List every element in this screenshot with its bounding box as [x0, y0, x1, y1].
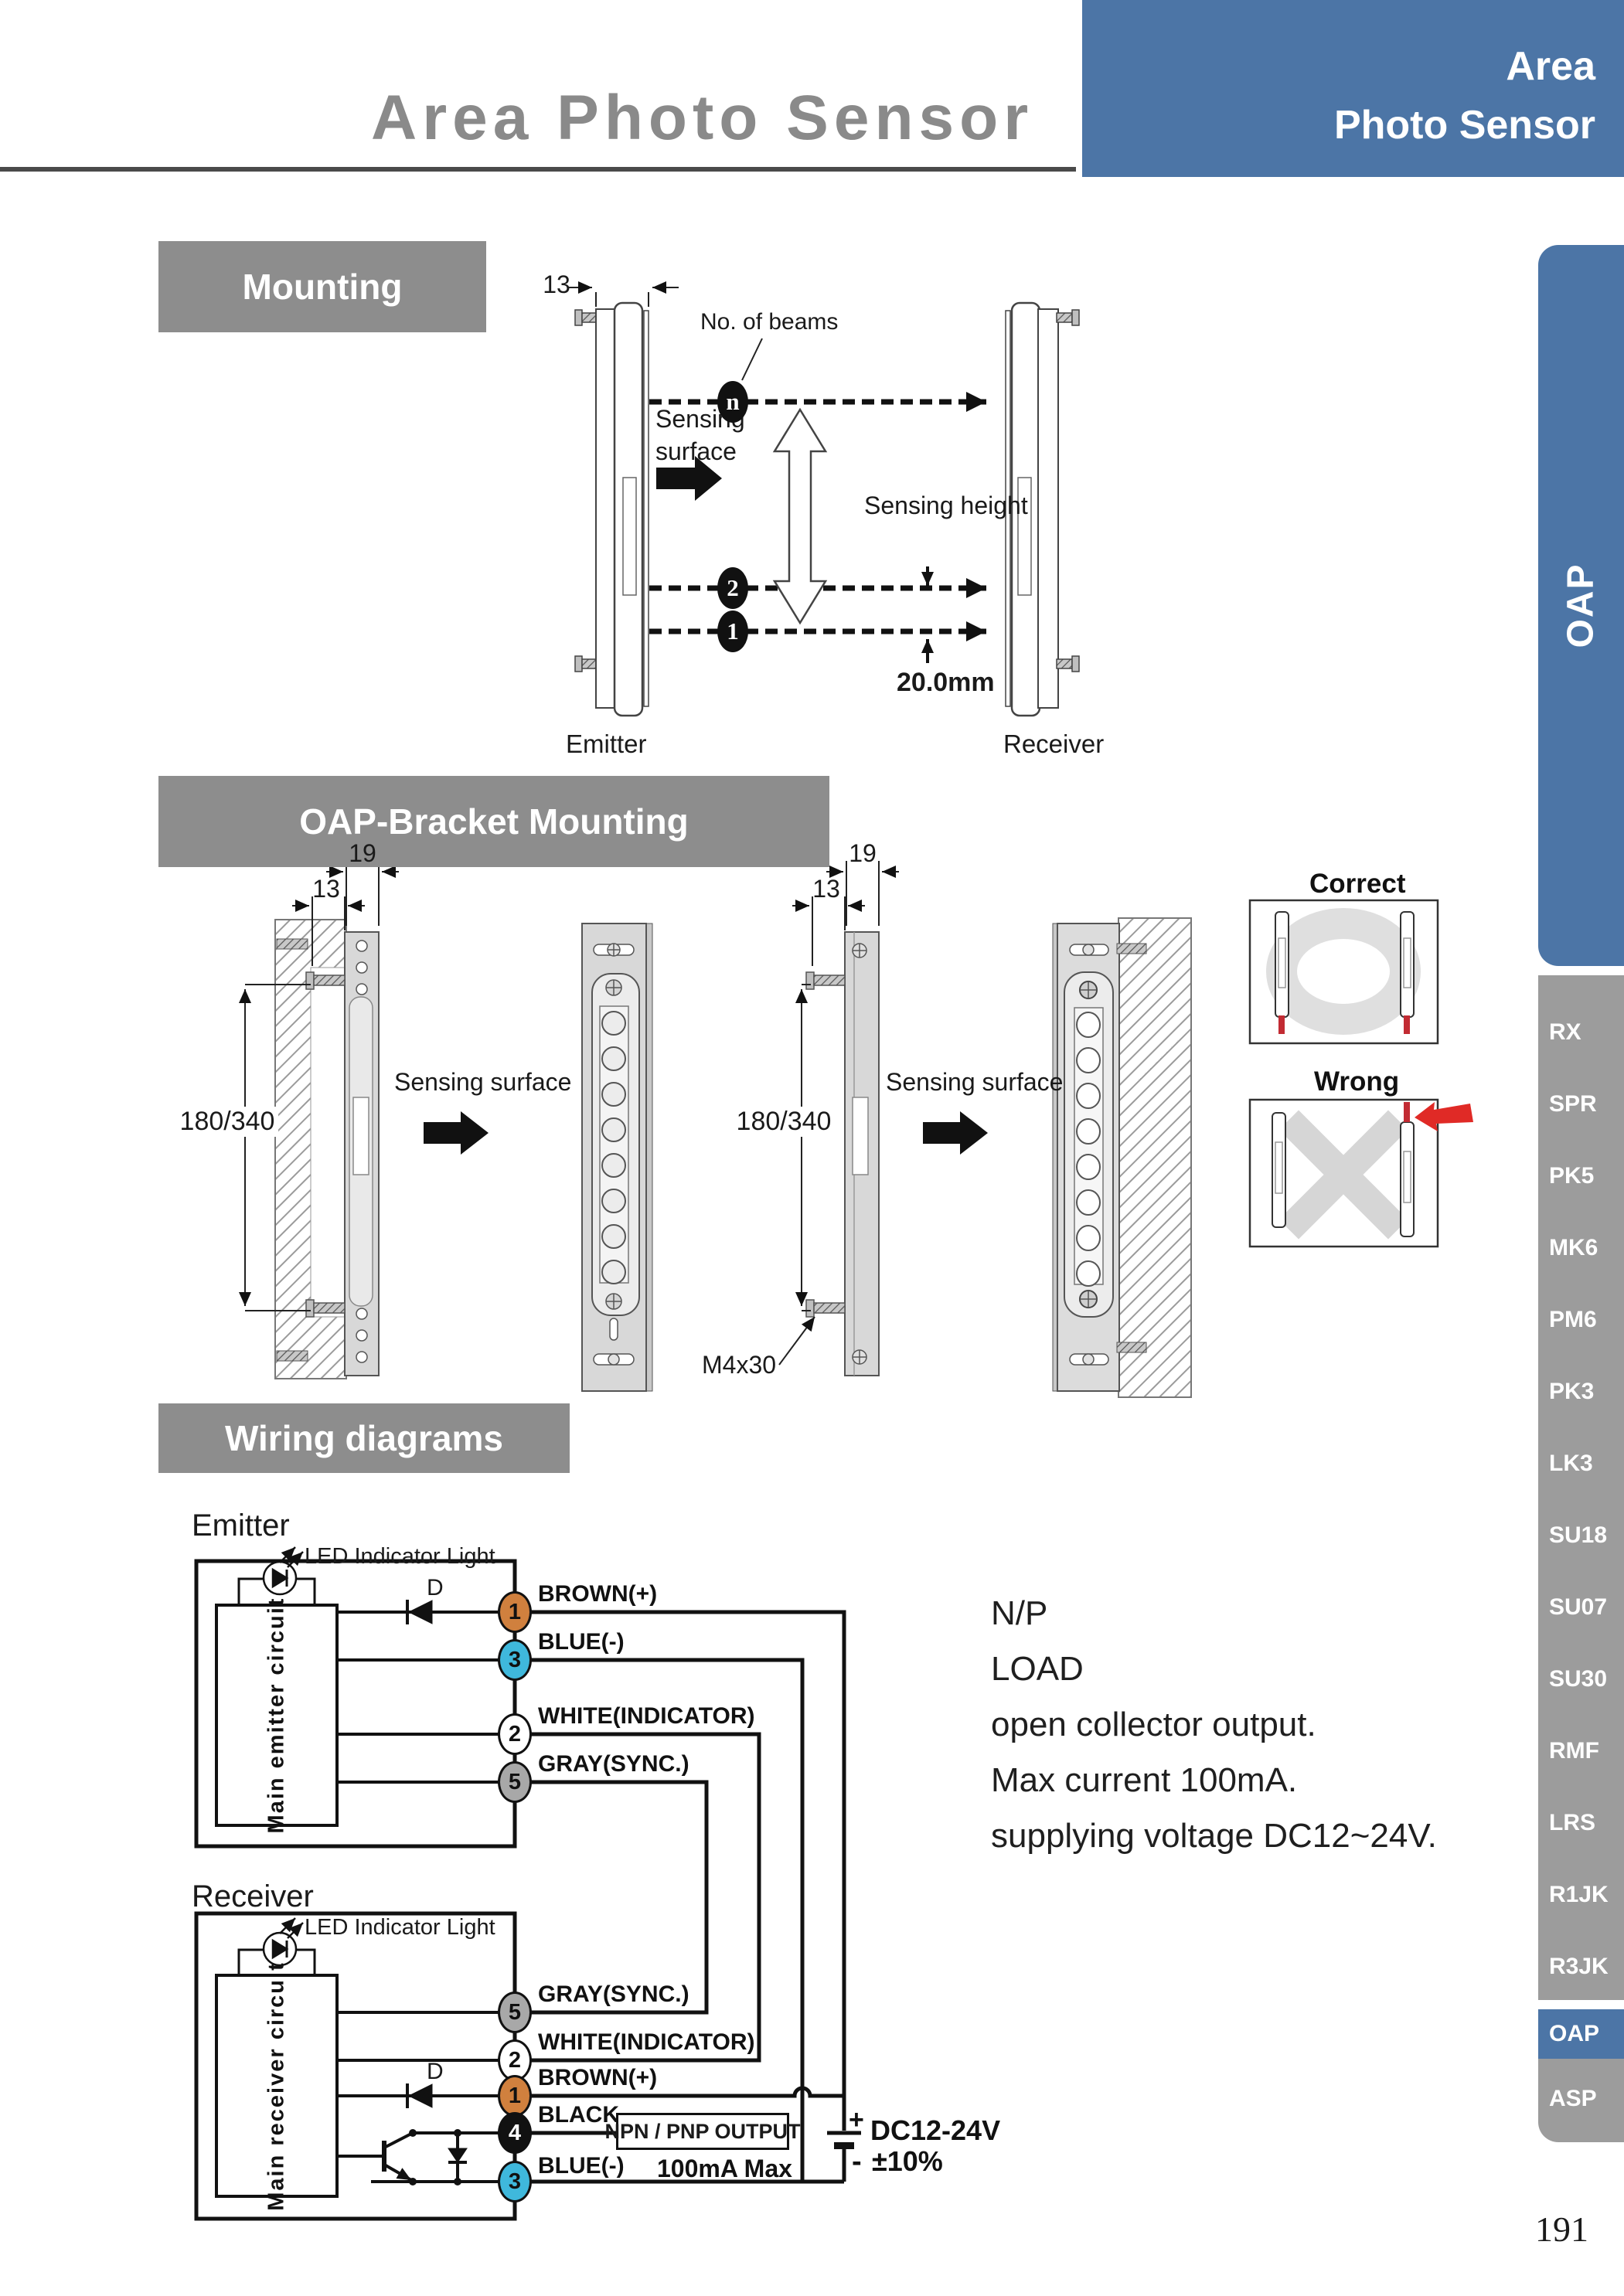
- receiver-terminal-gray: 5: [498, 1992, 532, 2033]
- sidebar-item-pk3[interactable]: PK3: [1538, 1375, 1624, 1409]
- bracket-dim-height-b: 180/340: [733, 1107, 835, 1137]
- sidebar-item-su30[interactable]: SU30: [1538, 1662, 1624, 1696]
- badge-line2: Photo Sensor: [1082, 102, 1595, 148]
- bracket-sensing-surface-a: Sensing surface: [394, 1068, 571, 1097]
- page-number: 191: [1535, 2209, 1588, 2250]
- section-header-mounting: Mounting: [158, 241, 486, 332]
- sidebar-item-pm6[interactable]: PM6: [1538, 1303, 1624, 1337]
- receiver-led-label: LED Indicator Light: [305, 1915, 495, 1941]
- page-title: Area Photo Sensor: [371, 82, 1033, 155]
- sensing-surface-label-line2: surface: [655, 437, 737, 466]
- bracket-diagram: [245, 861, 1473, 1397]
- note-line2: LOAD: [991, 1641, 1084, 1697]
- receiver-terminal-brown: 1: [498, 2075, 532, 2117]
- bracket-sensing-surface-b: Sensing surface: [886, 1068, 1063, 1097]
- receiver-wire-brown-label: BROWN(+): [538, 2065, 657, 2091]
- no-of-beams-label: No. of beams: [700, 309, 838, 335]
- emitter-led-label: LED Indicator Light: [305, 1544, 495, 1570]
- sidebar-item-spr[interactable]: SPR: [1538, 1087, 1624, 1121]
- emitter-circuit-block: Main emitter circuit: [216, 1605, 337, 1825]
- supply-tolerance-label: ±10%: [872, 2145, 943, 2178]
- emitter-terminal-gray: 5: [498, 1761, 532, 1803]
- section-header-wiring: Wiring diagrams: [158, 1403, 570, 1473]
- bracket-dim-13-b: 13: [809, 875, 843, 903]
- receiver-circuit-block: Main receiver circuit: [216, 1975, 337, 2196]
- beam-gap-label: 20.0mm: [897, 668, 995, 698]
- max-current-label: 100mA Max: [657, 2155, 792, 2183]
- bracket-dim-19-b: 19: [846, 839, 880, 868]
- battery-minus: -: [852, 2145, 862, 2179]
- sidebar-tab-oap[interactable]: OAP: [1538, 245, 1624, 966]
- wiring-emitter-title: Emitter: [192, 1509, 290, 1543]
- emitter-wire-blue-label: BLUE(-): [538, 1629, 625, 1655]
- output-type-box: NPN / PNP OUTPUT: [616, 2113, 789, 2150]
- sidebar-item-asp[interactable]: ASP: [1538, 2082, 1624, 2116]
- sidebar-item-lk3[interactable]: LK3: [1538, 1447, 1624, 1481]
- note-line4: Max current 100mA.: [991, 1753, 1297, 1808]
- catalog-page: Area Photo Sensor Area Photo Sensor Moun…: [0, 0, 1624, 2296]
- note-line3: open collector output.: [991, 1697, 1316, 1753]
- sidebar-item-su18[interactable]: SU18: [1538, 1519, 1624, 1553]
- sidebar-item-su07[interactable]: SU07: [1538, 1590, 1624, 1624]
- sensing-height-label: Sensing height: [864, 492, 1028, 520]
- sidebar-item-r1jk[interactable]: R1JK: [1538, 1878, 1624, 1912]
- receiver-wire-white-label: WHITE(INDICATOR): [538, 2029, 755, 2056]
- sidebar-strip: [1538, 975, 1624, 2000]
- bracket-screw-spec: M4x30: [702, 1351, 776, 1379]
- wrong-label: Wrong: [1314, 1066, 1399, 1097]
- sidebar-item-mk6[interactable]: MK6: [1538, 1231, 1624, 1265]
- receiver-diode-label: D: [427, 2059, 444, 2085]
- sidebar-item-rx[interactable]: RX: [1538, 1015, 1624, 1049]
- emitter-terminal-white: 2: [498, 1713, 532, 1755]
- receiver-terminal-black: 4: [498, 2112, 532, 2154]
- correct-label: Correct: [1309, 869, 1405, 900]
- emitter-terminal-blue: 3: [498, 1639, 532, 1681]
- badge-line1: Area: [1082, 43, 1595, 90]
- section-header-bracket: OAP-Bracket Mounting: [158, 776, 829, 867]
- beam-n-marker: n: [717, 381, 748, 423]
- wiring-receiver-title: Receiver: [192, 1879, 314, 1914]
- receiver-wire-blue-label: BLUE(-): [538, 2153, 625, 2179]
- emitter-wire-white-label: WHITE(INDICATOR): [538, 1703, 755, 1730]
- bracket-dim-height-a: 180/340: [176, 1107, 278, 1137]
- header-rule: [0, 167, 1076, 172]
- note-line5: supplying voltage DC12~24V.: [991, 1808, 1437, 1864]
- beam-2-marker: 2: [717, 567, 748, 609]
- emitter-terminal-brown: 1: [498, 1591, 532, 1633]
- mounting-emitter-label: Emitter: [566, 730, 647, 759]
- supply-voltage-label: DC12-24V: [870, 2114, 1000, 2147]
- bracket-dim-13-a: 13: [309, 875, 343, 903]
- sidebar-item-r3jk[interactable]: R3JK: [1538, 1950, 1624, 1984]
- sidebar-item-oap-active[interactable]: OAP: [1538, 2009, 1624, 2059]
- battery-plus: +: [849, 2105, 864, 2135]
- sidebar-item-rmf[interactable]: RMF: [1538, 1734, 1624, 1768]
- bracket-dim-19-a: 19: [346, 839, 380, 868]
- note-line1: N/P: [991, 1586, 1047, 1641]
- beam-1-marker: 1: [717, 611, 748, 652]
- receiver-terminal-blue: 3: [498, 2161, 532, 2202]
- emitter-diode-label: D: [427, 1575, 444, 1601]
- sidebar-item-pk5[interactable]: PK5: [1538, 1159, 1624, 1193]
- receiver-wire-gray-label: GRAY(SYNC.): [538, 1981, 689, 2008]
- mounting-receiver-label: Receiver: [1003, 730, 1104, 759]
- sidebar-item-lrs[interactable]: LRS: [1538, 1806, 1624, 1840]
- emitter-wire-brown-label: BROWN(+): [538, 1581, 657, 1607]
- diagram-linework: [0, 0, 1624, 2296]
- emitter-wire-gray-label: GRAY(SYNC.): [538, 1751, 689, 1777]
- mounting-dim-13: 13: [540, 270, 574, 299]
- sidebar-tab-label: OAP: [1538, 245, 1624, 966]
